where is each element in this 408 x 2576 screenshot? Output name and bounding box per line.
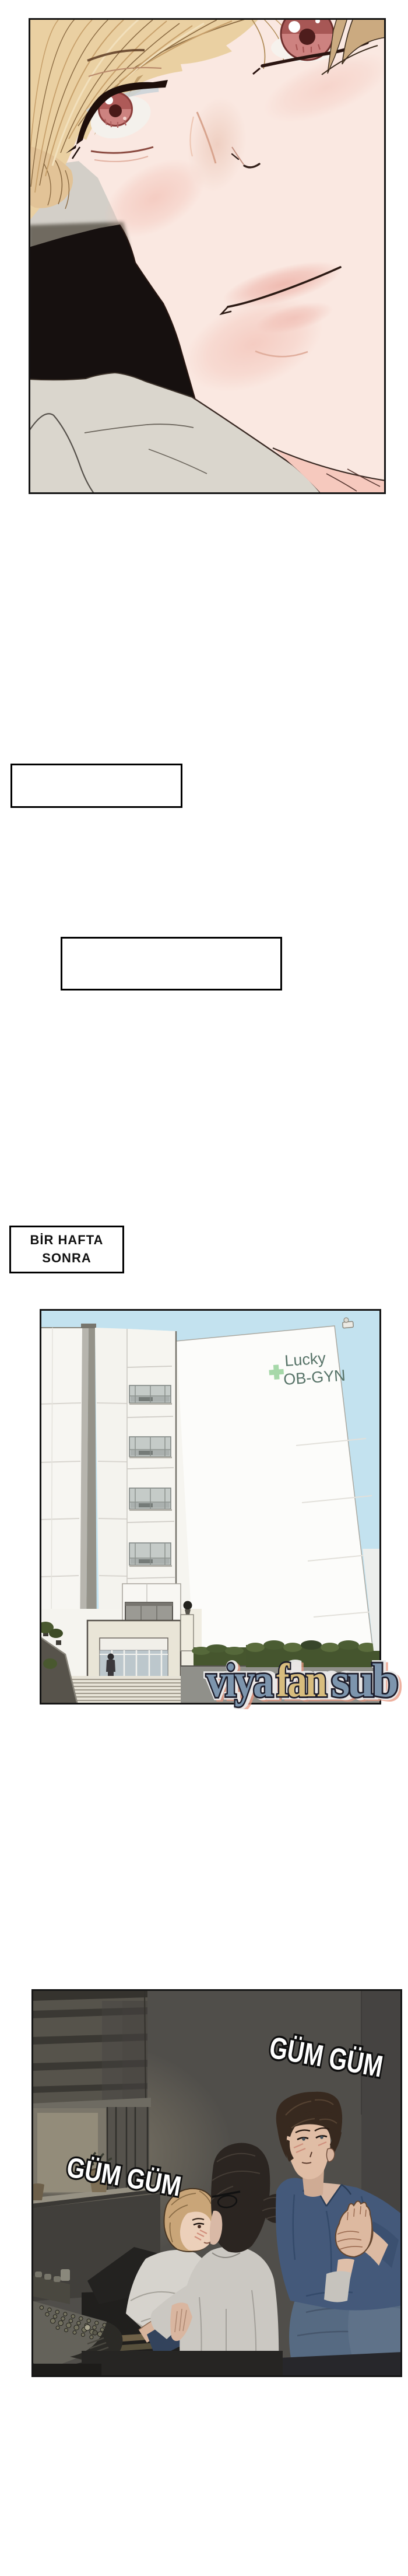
svg-text:Lucky: Lucky [284, 1349, 326, 1370]
svg-text:viya: viya [206, 1654, 273, 1707]
svg-text:sub: sub [331, 1654, 397, 1707]
svg-text:fan: fan [276, 1654, 327, 1707]
